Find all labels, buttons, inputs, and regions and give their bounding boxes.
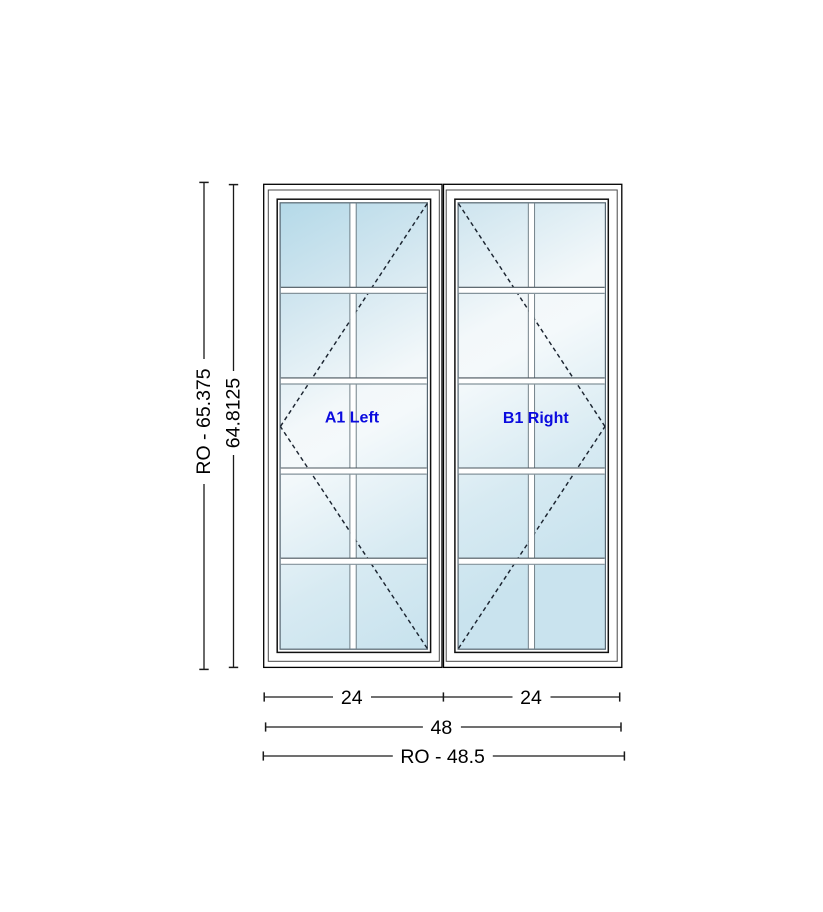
svg-text:48: 48 <box>431 717 453 739</box>
svg-text:24: 24 <box>341 687 363 709</box>
svg-text:64.8125: 64.8125 <box>222 378 244 449</box>
svg-text:24: 24 <box>520 687 542 709</box>
svg-text:RO - 48.5: RO - 48.5 <box>400 746 485 768</box>
svg-text:B1 Right: B1 Right <box>503 410 569 427</box>
svg-text:RO - 65.375: RO - 65.375 <box>193 368 215 474</box>
svg-text:A1 Left: A1 Left <box>325 409 380 426</box>
